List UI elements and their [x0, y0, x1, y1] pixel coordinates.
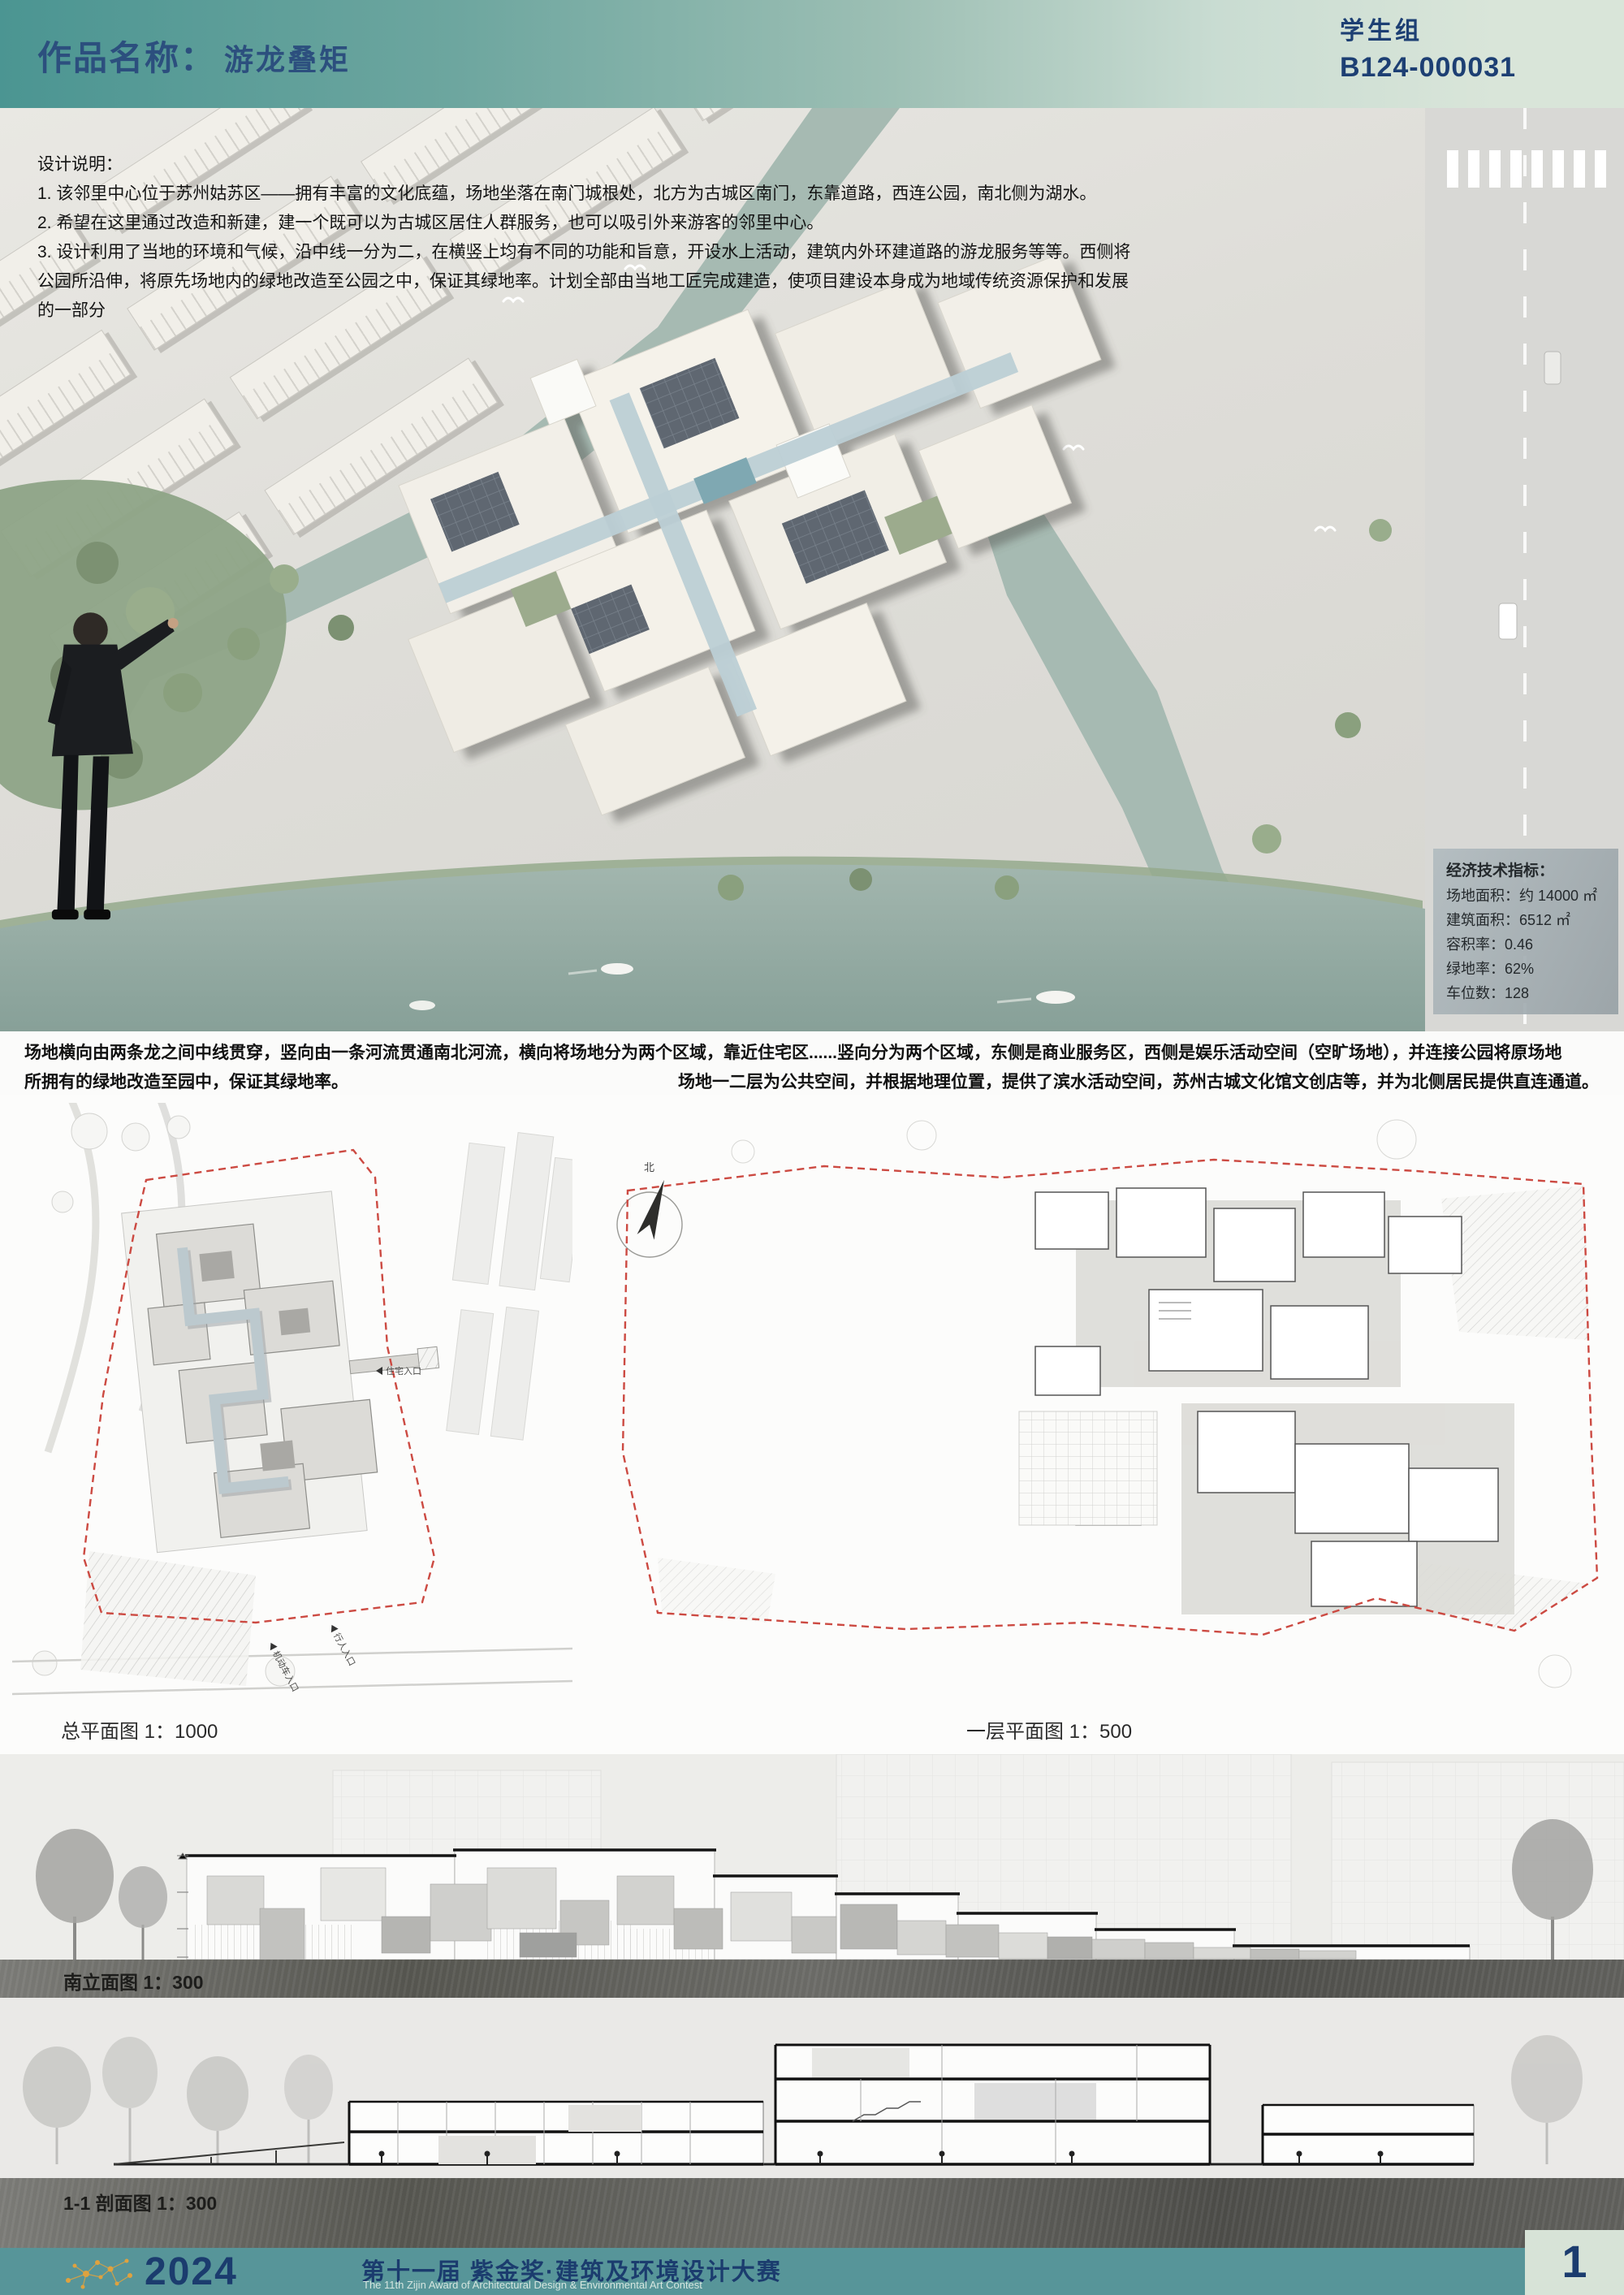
site-description-line2-right: 场地一二层为公共空间，并根据地理位置，提供了滨水活动空间，苏州古城文化馆文创店等…: [678, 1069, 1599, 1093]
site-description-line2-left: 所拥有的绿地改造至园中，保证其绿地率。: [24, 1069, 348, 1093]
annotation-pedestrian-entrance: 行人入口: [331, 1632, 357, 1668]
plan-drawings: 住宅入口 行人入口 机动车入口 北: [0, 1095, 1624, 1754]
design-notes-line: 1. 该邻里中心位于苏州姑苏区——拥有丰富的文化底蕴，场地坐落在南门城根处，北方…: [37, 179, 1130, 209]
competition-poster: 作品名称：游龙叠矩 学生组 B124-000031: [0, 0, 1624, 2295]
south-elevation-drawing: [0, 1754, 1624, 1960]
terrace-hatch: [80, 1551, 256, 1686]
section-ground-band: 1-1 剖面图 1：300: [0, 2178, 1624, 2248]
south-elevation-area: [0, 1754, 1624, 1960]
figure-hand: [168, 618, 179, 629]
entry-info: 学生组 B124-000031: [1340, 15, 1516, 88]
figure-leg: [87, 756, 110, 910]
context-buildings: [434, 1127, 572, 1444]
floor-plan-label: 一层平面图 1：500: [966, 1715, 1132, 1744]
zijin-award-network-icon: [58, 2253, 136, 2292]
page-number-panel: 1: [1525, 2230, 1624, 2295]
contest-year: 2024: [145, 2250, 238, 2294]
page-number: 1: [1525, 2235, 1624, 2288]
figure-head: [73, 612, 108, 647]
design-notes-line: 公园所沿伸，将原先场地内的绿地改造至公园之中，保证其绿地率。计划全部由当地工匠完…: [37, 267, 1130, 296]
north-label: 北: [644, 1161, 654, 1173]
aerial-render: 设计说明： 1. 该邻里中心位于苏州姑苏区——拥有丰富的文化底蕴，场地坐落在南门…: [0, 108, 1624, 1031]
floor-plan-drawing: 北: [581, 1103, 1616, 1720]
work-title: 作品名称：游龙叠矩: [37, 31, 351, 80]
contest-title-en: The 11th Zijin Award of Architectural De…: [363, 2279, 702, 2291]
indicator-row: 绿地率：62%: [1446, 957, 1618, 981]
entry-group: 学生组: [1340, 15, 1516, 49]
elevation-ground-band: 南立面图 1：300: [0, 1960, 1624, 1998]
section-block-center: [775, 2045, 1210, 2164]
indicator-row: 车位数：128: [1446, 981, 1618, 1005]
site-plan-label: 总平面图 1：1000: [61, 1715, 218, 1744]
section-label: 1-1 剖面图 1：300: [63, 2188, 217, 2215]
site-plan-drawing: 住宅入口 行人入口 机动车入口: [12, 1103, 572, 1720]
court-grid: [1019, 1411, 1157, 1525]
work-title-name: 游龙叠矩: [224, 43, 351, 76]
section-drawing: [0, 1998, 1624, 2178]
figure-leg: [57, 755, 78, 911]
terrace-hatch: [1441, 1186, 1589, 1340]
section-drawing-area: [0, 1998, 1624, 2178]
entry-code: B124-000031: [1340, 49, 1516, 88]
design-notes-heading: 设计说明：: [37, 150, 1130, 179]
section-block-east: [1263, 2105, 1474, 2164]
elevation-label: 南立面图 1：300: [63, 1967, 204, 1995]
site-description: 场地横向由两条龙之间中线贯穿，竖向由一条河流贯通南北河流，横向将场地分为两个区域…: [0, 1031, 1624, 1095]
indicator-row: 场地面积：约 14000 ㎡: [1446, 884, 1618, 908]
technical-indicators-panel: 经济技术指标： 场地面积：约 14000 ㎡ 建筑面积：6512 ㎡ 容积率：0…: [1433, 849, 1618, 1014]
poster-header: 作品名称：游龙叠矩 学生组 B124-000031: [0, 0, 1624, 108]
annotation-residential-entrance: 住宅入口: [386, 1365, 421, 1377]
design-notes-line: 3. 设计利用了当地的环境和气候，沿中线一分为二，在横竖上均有不同的功能和旨意，…: [37, 238, 1130, 267]
indicators-title: 经济技术指标：: [1446, 858, 1618, 880]
work-title-label: 作品名称：: [37, 39, 216, 77]
design-notes-line: 2. 希望在这里通过改造和新建，建一个既可以为古城区居住人群服务，也可以吸引外来…: [37, 209, 1130, 238]
site-description-line1: 场地横向由两条龙之间中线贯穿，竖向由一条河流贯通南北河流，横向将场地分为两个区域…: [24, 1039, 1562, 1064]
terrace-hatch: [658, 1558, 775, 1623]
indicator-row: 建筑面积：6512 ㎡: [1446, 908, 1618, 932]
design-notes: 设计说明： 1. 该邻里中心位于苏州姑苏区——拥有丰富的文化底蕴，场地坐落在南门…: [37, 150, 1130, 326]
section-block-west: [349, 2102, 763, 2164]
figure-pointing-arm: [112, 619, 175, 669]
indicator-row: 容积率：0.46: [1446, 932, 1618, 957]
design-notes-line: 的一部分: [37, 296, 1130, 326]
poster-footer: 2024 第十一届 紫金奖·建筑及环境设计大赛 The 11th Zijin A…: [0, 2248, 1624, 2295]
